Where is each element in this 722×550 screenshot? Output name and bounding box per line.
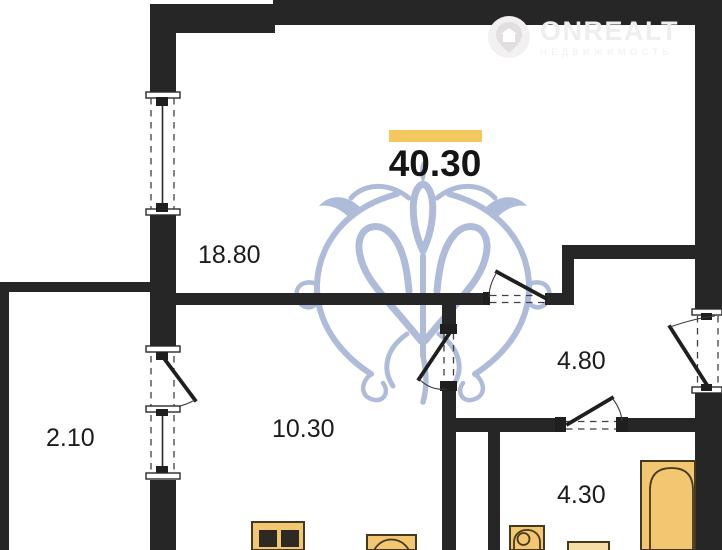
kitchen-sink (367, 535, 416, 550)
bathtub (641, 461, 695, 550)
entrance-door-icon (670, 309, 722, 393)
floorplan-page: 40.30 18.80 10.30 2.10 4.80 4.30 ONREALT… (0, 0, 722, 550)
room-label-balcony: 2.10 (46, 424, 95, 453)
brand-tagline: НЕДВИЖИМОСТЬ (540, 47, 679, 57)
stove (252, 522, 304, 550)
washbasin (510, 526, 544, 550)
bathroom-door-icon (555, 398, 628, 432)
total-area-value: 40.30 (378, 145, 492, 182)
walls (0, 0, 722, 550)
total-area-block: 40.30 (378, 130, 492, 182)
balcony-door-icon (146, 346, 195, 416)
accent-bar (389, 130, 482, 142)
floorplan-drawing (0, 0, 722, 550)
brand-pin-icon (487, 15, 531, 59)
toilet (568, 542, 609, 550)
room-label-living-room: 18.80 (198, 241, 261, 270)
room-label-kitchen: 10.30 (272, 415, 335, 444)
brand-logo: ONREALT НЕДВИЖИМОСТЬ (487, 15, 679, 59)
balcony-window-icon (146, 415, 180, 479)
window-left-icon (146, 92, 180, 215)
living-room-door-icon (483, 272, 545, 305)
room-label-bathroom: 4.30 (557, 481, 606, 510)
brand-name: ONREALT (540, 17, 679, 45)
room-label-hallway: 4.80 (557, 347, 606, 376)
